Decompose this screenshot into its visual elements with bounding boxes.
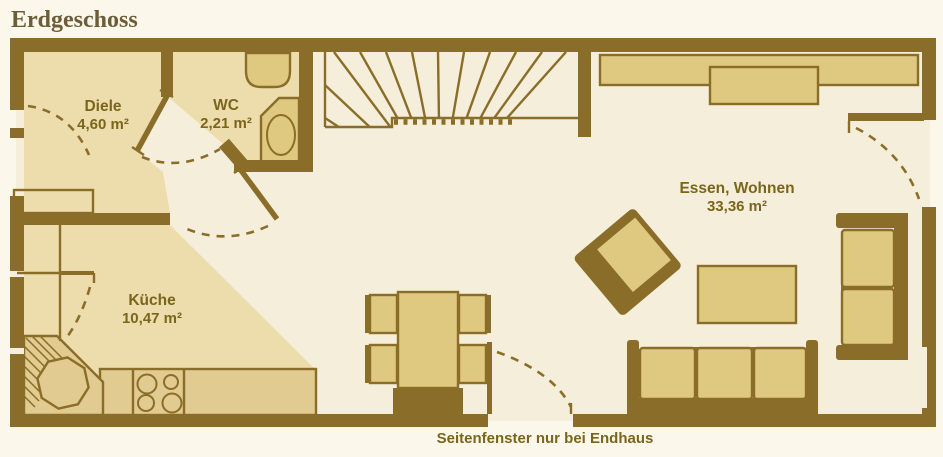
- dining-table: [398, 292, 458, 388]
- room-name: Diele: [84, 98, 121, 115]
- wall-right-mid: [922, 207, 936, 343]
- label-diele: Diele 4,60 m²: [77, 98, 129, 133]
- sideboard-under-window: [393, 388, 463, 415]
- wall-right-upper: [922, 38, 936, 120]
- coffee-table: [698, 266, 796, 323]
- dining-chair: [365, 295, 397, 333]
- room-name: Küche: [128, 292, 176, 309]
- sofa-three-seat: [627, 340, 818, 414]
- wall-bottom-left: [10, 414, 488, 427]
- wall-kitchen-top: [10, 213, 170, 225]
- room-area: 2,21 m²: [200, 115, 252, 132]
- dining-chair: [365, 345, 397, 383]
- sofa-two-seat: [836, 213, 908, 360]
- room-name: Essen, Wohnen: [679, 180, 794, 197]
- footnote-caption: Seitenfenster nur bei Endhaus: [437, 430, 654, 447]
- floor-plan-page: Diele 4,60 m² WC 2,21 m² Küche 10,47 m² …: [0, 0, 943, 457]
- label-kueche: Küche 10,47 m²: [122, 292, 182, 327]
- room-area: 4,60 m²: [77, 116, 129, 133]
- wall-stair-right: [578, 52, 591, 137]
- wall-left-lower: [10, 196, 24, 427]
- wall-left-upper: [10, 38, 24, 110]
- toilet: [246, 53, 290, 87]
- page-title: Erdgeschoss: [11, 7, 138, 33]
- dining-chair: [459, 345, 491, 383]
- dining-chair: [459, 295, 491, 333]
- room-area: 33,36 m²: [707, 198, 767, 215]
- wall-wc-right: [299, 52, 313, 172]
- sink-basin: [37, 357, 88, 408]
- entry-door-hinge: [10, 128, 24, 138]
- room-name: WC: [213, 97, 239, 114]
- wall-top: [10, 38, 936, 52]
- lowboard: [710, 67, 818, 104]
- wall-bottom-right: [573, 414, 936, 427]
- floor-plan-svg: Diele 4,60 m² WC 2,21 m² Küche 10,47 m² …: [0, 0, 943, 457]
- side-window: [922, 347, 927, 408]
- kitchen-window-notch: [10, 348, 24, 354]
- room-area: 10,47 m²: [122, 310, 182, 327]
